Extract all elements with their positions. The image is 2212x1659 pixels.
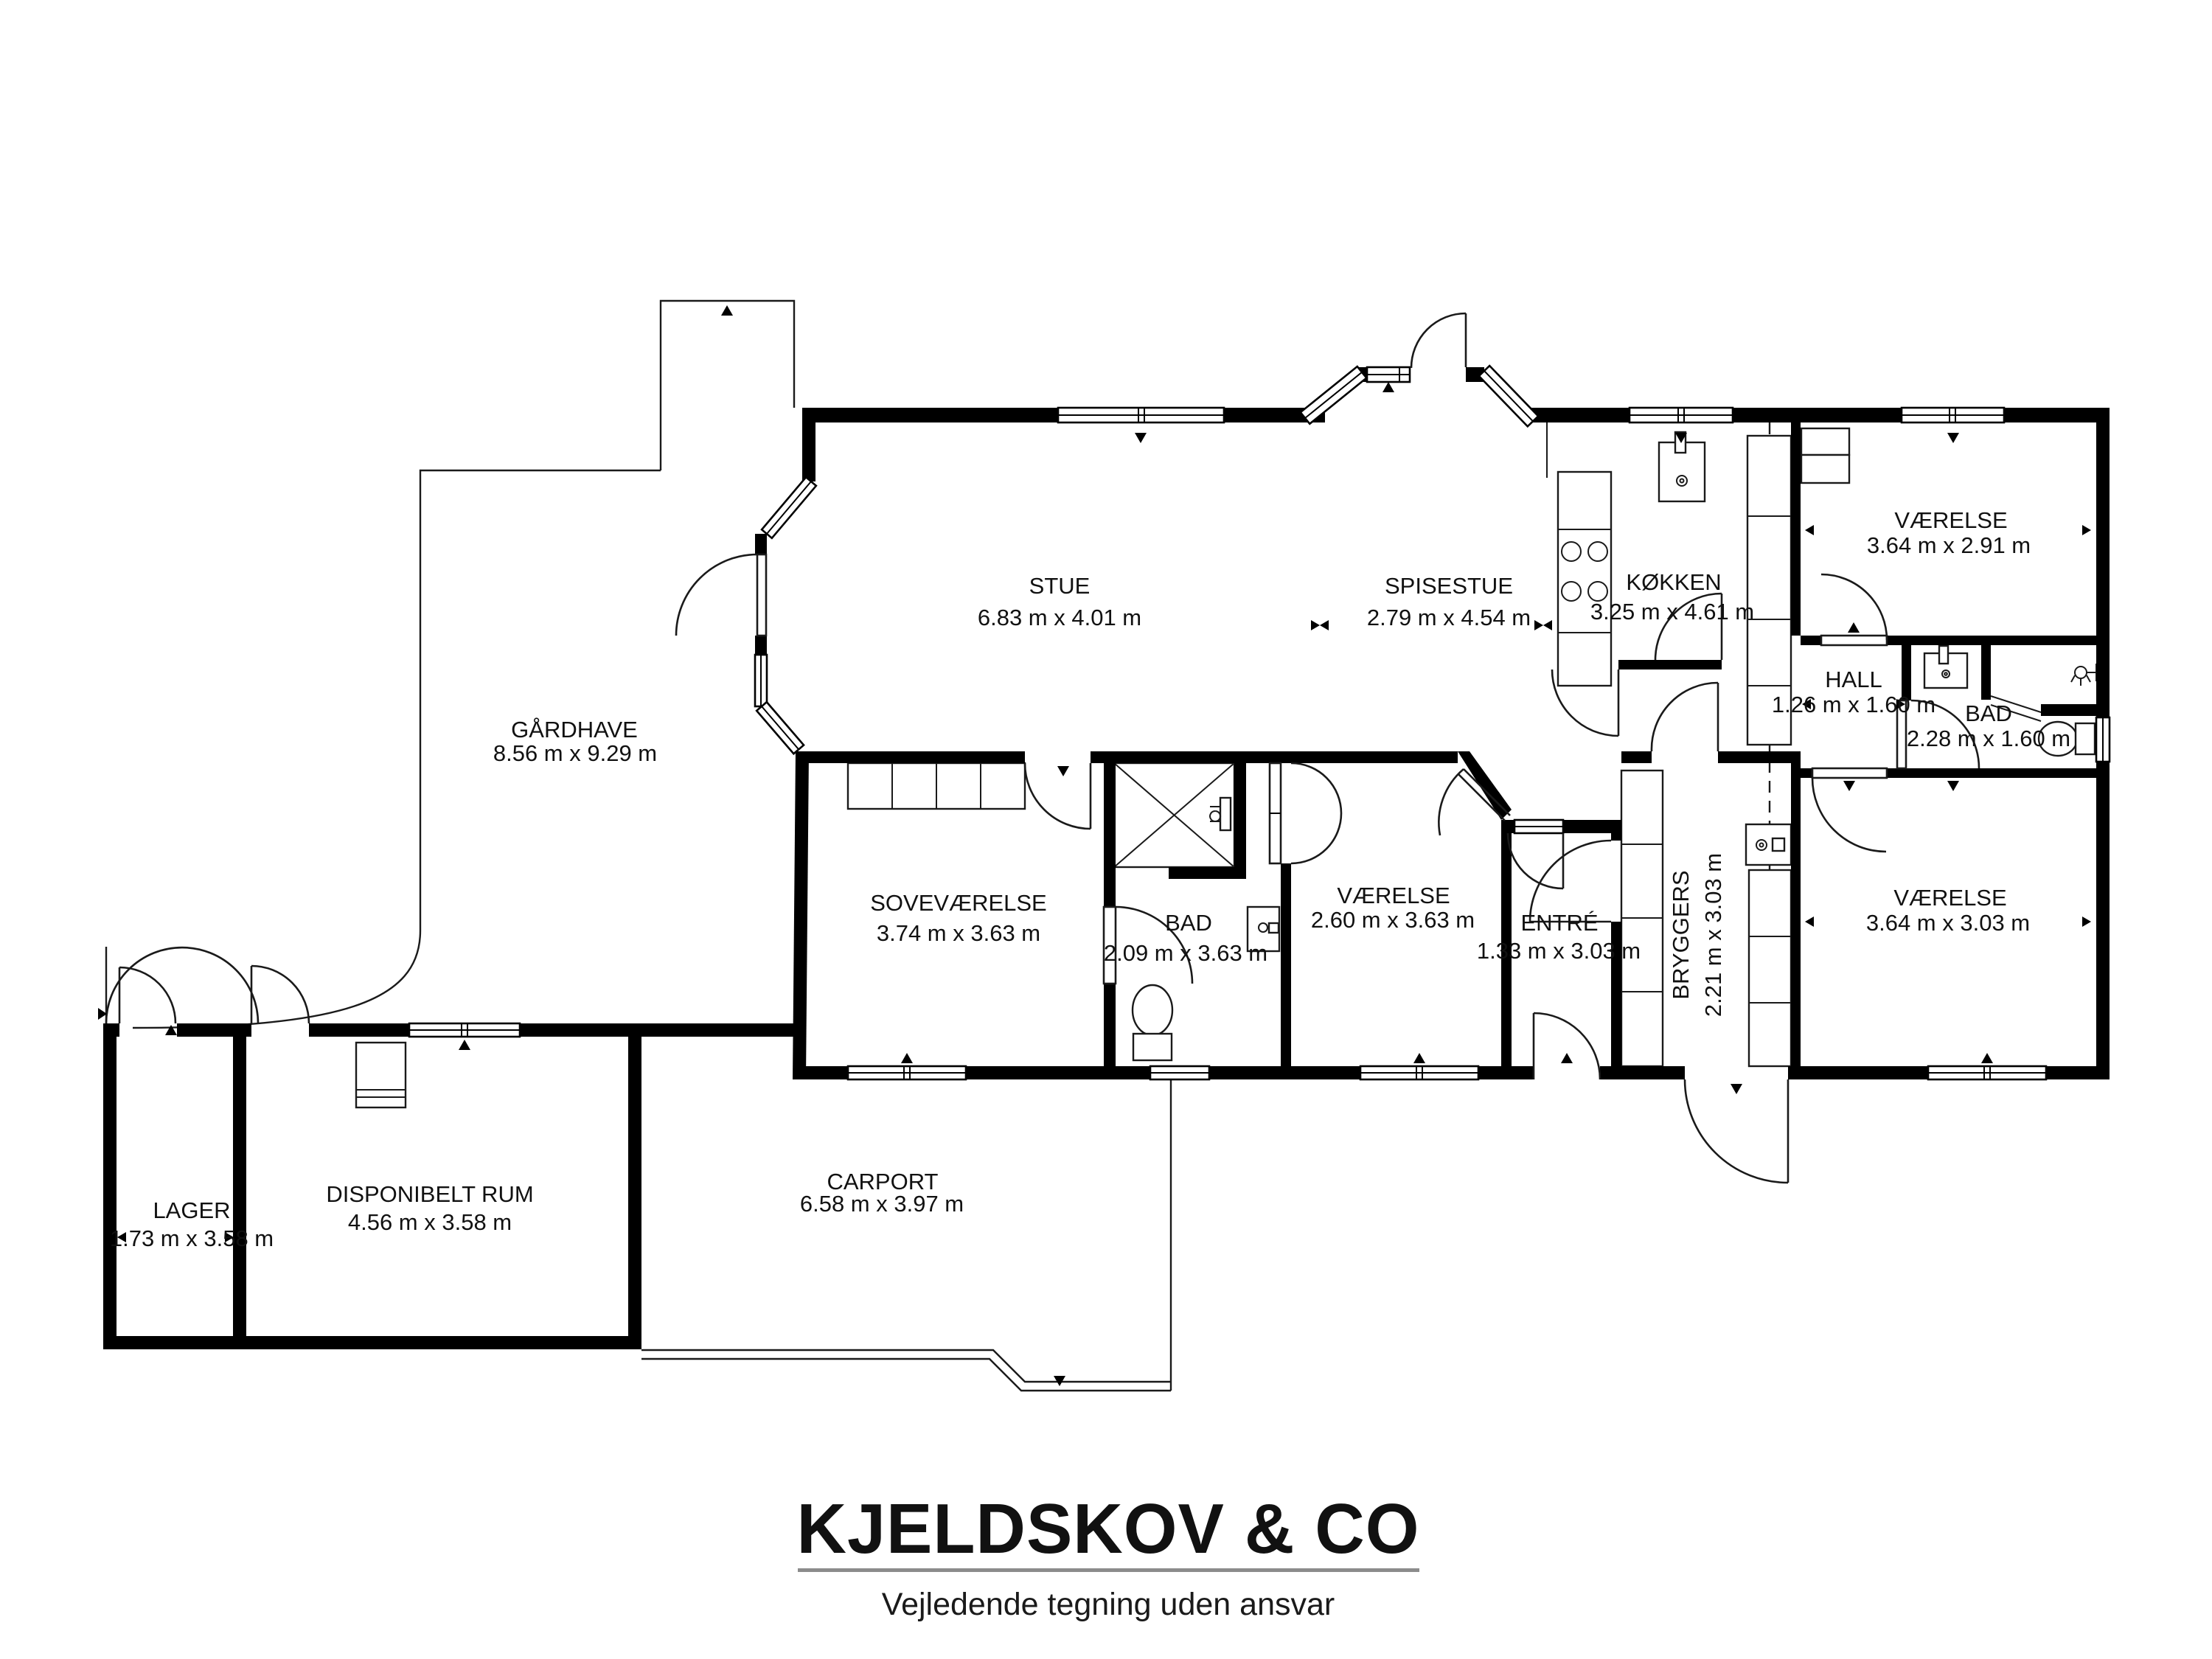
svg-text:BAD: BAD [1965, 700, 2012, 726]
floor-plan-drawing: STUE6.83 m x 4.01 m SPISESTUE2.79 m x 4.… [0, 0, 2212, 1659]
door-entre-inner [1508, 833, 1563, 888]
brand-logo: KJELDSKOV & CO [797, 1489, 1420, 1568]
door-disponibelt [251, 966, 309, 1023]
door-hall-south [1812, 768, 1887, 852]
svg-text:2.60 m x 3.63 m: 2.60 m x 3.63 m [1311, 907, 1475, 933]
room-label-spisestue: SPISESTUE2.79 m x 4.54 m [1367, 573, 1531, 630]
room-label-sovevaerelse: SOVEVÆRELSE3.74 m x 3.63 m [870, 890, 1046, 946]
svg-text:SPISESTUE: SPISESTUE [1385, 573, 1513, 599]
svg-text:HALL: HALL [1825, 667, 1882, 692]
room-label-bryggers: BRYGGERS2.21 m x 3.03 m [1668, 853, 1726, 1017]
svg-text:VÆRELSE: VÆRELSE [1893, 885, 2006, 911]
svg-text:DISPONIBELT RUM: DISPONIBELT RUM [326, 1181, 533, 1207]
disclaimer-text: Vejledende tegning uden ansvar [882, 1587, 1335, 1622]
sovevaerelse-left-wall [793, 751, 809, 1079]
window-courtyard-lower [757, 702, 804, 754]
door-lager [119, 967, 175, 1023]
svg-text:GÅRDHAVE: GÅRDHAVE [511, 717, 638, 742]
svg-text:2.09 m x 3.63 m: 2.09 m x 3.63 m [1104, 940, 1267, 966]
room-label-vaerelse-ne: VÆRELSE3.64 m x 2.91 m [1867, 507, 2031, 558]
svg-text:VÆRELSE: VÆRELSE [1894, 507, 2007, 533]
kitchen-sink-icon [1659, 432, 1705, 501]
shower-head-icon [2071, 664, 2096, 686]
room-label-bad-mid: BAD2.09 m x 3.63 m [1104, 910, 1267, 966]
svg-text:2.28 m x 1.60 m: 2.28 m x 1.60 m [1907, 726, 2070, 751]
svg-text:3.64 m x 3.03 m: 3.64 m x 3.03 m [1866, 910, 2030, 936]
window-kokken-top [1630, 408, 1733, 422]
room-label-kokken: KØKKEN3.25 m x 4.61 m [1590, 569, 1754, 625]
svg-text:SOVEVÆRELSE: SOVEVÆRELSE [870, 890, 1046, 916]
window-courtyard-mid [755, 655, 767, 706]
svg-text:8.56 m x 9.29 m: 8.56 m x 9.29 m [493, 740, 657, 766]
window-vaerelse-ne-top [1902, 408, 2004, 422]
room-label-disponibelt: DISPONIBELT RUM4.56 m x 3.58 m [326, 1181, 533, 1235]
svg-text:4.56 m x 3.58 m: 4.56 m x 3.58 m [348, 1209, 512, 1235]
wardrobe-icon-sovevaerelse [848, 763, 1025, 809]
svg-text:LAGER: LAGER [153, 1197, 230, 1223]
svg-text:1.73 m x 3.58 m: 1.73 m x 3.58 m [110, 1225, 274, 1251]
floor-plan-page: STUE6.83 m x 4.01 m SPISESTUE2.79 m x 4.… [0, 0, 2212, 1659]
footer: KJELDSKOV & CO Vejledende tegning uden a… [797, 1489, 1420, 1622]
svg-text:2.21 m x 3.03 m: 2.21 m x 3.03 m [1700, 853, 1726, 1017]
toilet-icon-mid-bad [1133, 985, 1172, 1060]
svg-text:ENTRÉ: ENTRÉ [1520, 910, 1598, 936]
room-label-gaardhave: GÅRDHAVE8.56 m x 9.29 m [493, 717, 657, 766]
sink-icon-bad-east [1924, 646, 1967, 688]
svg-text:BAD: BAD [1165, 910, 1212, 936]
svg-text:3.64 m x 2.91 m: 3.64 m x 2.91 m [1867, 532, 2031, 558]
washer-icon [1746, 824, 1791, 865]
window-courtyard-upper [762, 477, 816, 538]
shower-mid-bad [1114, 763, 1234, 867]
svg-text:6.58 m x 3.97 m: 6.58 m x 3.97 m [800, 1191, 964, 1217]
svg-text:1.26 m x 1.60 m: 1.26 m x 1.60 m [1772, 692, 1935, 717]
svg-text:STUE: STUE [1029, 573, 1091, 599]
window-bay-right [1479, 366, 1538, 426]
window-bay-top [1367, 367, 1410, 382]
svg-text:1.33 m x 3.03 m: 1.33 m x 3.03 m [1477, 938, 1641, 964]
door-entre-exterior [1534, 1013, 1600, 1079]
door-courtyard-stue [676, 554, 766, 636]
brand-rule [798, 1568, 1419, 1572]
water-heater-icon [356, 1043, 406, 1107]
window-bay-left [1301, 366, 1367, 424]
door-hall-vaerelse-ne [1821, 574, 1887, 645]
svg-text:3.25 m x 4.61 m: 3.25 m x 4.61 m [1590, 599, 1754, 625]
carport-outline [641, 1079, 1171, 1391]
door-vaerelse-mid-double [1270, 763, 1341, 863]
room-label-stue: STUE6.83 m x 4.01 m [978, 573, 1141, 630]
door-bryggers-exterior [1685, 1079, 1788, 1183]
window-stue-top [1058, 408, 1224, 422]
svg-text:2.79 m x 4.54 m: 2.79 m x 4.54 m [1367, 605, 1531, 630]
wardrobe-icon-vaerelse-ne [1801, 428, 1849, 483]
gate-door-arc [106, 947, 258, 1023]
window-sovevaerelse-bottom [848, 1066, 966, 1079]
room-label-carport: CARPORT6.58 m x 3.97 m [800, 1169, 964, 1217]
door-sovevaerelse [1025, 763, 1091, 829]
svg-text:KØKKEN: KØKKEN [1626, 569, 1721, 595]
window-bad-east [2096, 717, 2110, 762]
windows [409, 366, 2110, 1079]
window-bad-mid-bottom [1150, 1066, 1209, 1079]
svg-text:VÆRELSE: VÆRELSE [1337, 883, 1450, 908]
door-bryggers-top [1652, 683, 1718, 751]
door-bay-garden [1411, 313, 1466, 368]
room-label-vaerelse-mid: VÆRELSE2.60 m x 3.63 m [1311, 883, 1475, 933]
svg-text:6.83 m x 4.01 m: 6.83 m x 4.01 m [978, 605, 1141, 630]
window-vaerelse-se-bottom [1928, 1066, 2046, 1079]
svg-text:BRYGGERS: BRYGGERS [1668, 870, 1694, 999]
courtyard-boundary [106, 301, 794, 1028]
window-disponibelt [409, 1023, 520, 1037]
room-label-vaerelse-se: VÆRELSE3.64 m x 3.03 m [1866, 885, 2030, 936]
window-vaerelse-mid-bottom [1360, 1066, 1478, 1079]
room-label-lager: LAGER1.73 m x 3.58 m [110, 1197, 274, 1251]
kitchen-island [1547, 422, 1611, 686]
window-entre [1514, 820, 1563, 833]
svg-text:3.74 m x 3.63 m: 3.74 m x 3.63 m [877, 920, 1040, 946]
